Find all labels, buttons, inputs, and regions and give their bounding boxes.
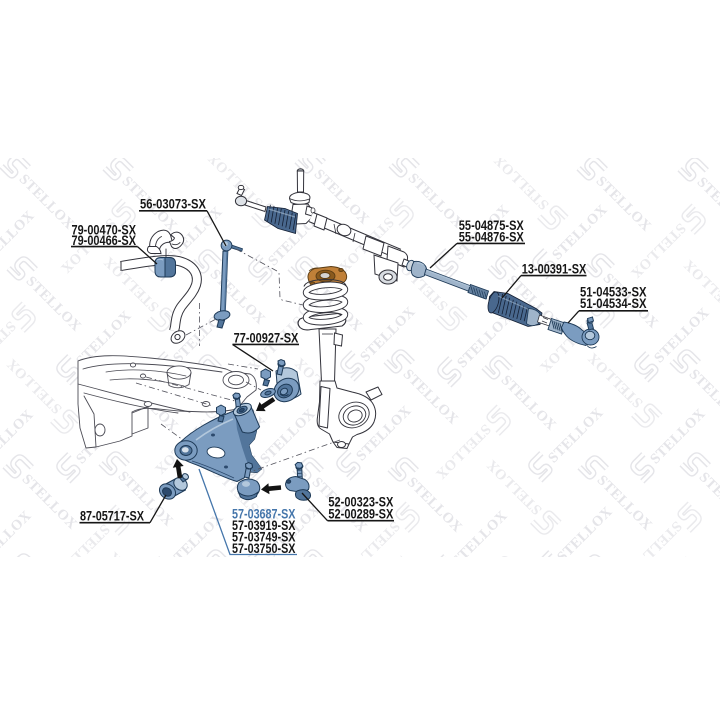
svg-text:51-04534-SX: 51-04534-SX [580, 296, 647, 311]
svg-text:77-00927-SX: 77-00927-SX [234, 330, 299, 345]
svg-text:57-03750-SX: 57-03750-SX [232, 541, 296, 556]
svg-text:55-04876-SX: 55-04876-SX [459, 230, 524, 245]
svg-text:52-00289-SX: 52-00289-SX [328, 506, 393, 521]
svg-text:79-00466-SX: 79-00466-SX [72, 233, 137, 248]
svg-text:87-05717-SX: 87-05717-SX [80, 508, 144, 523]
svg-text:13-00391-SX: 13-00391-SX [522, 261, 587, 276]
svg-text:56-03073-SX: 56-03073-SX [140, 197, 206, 212]
